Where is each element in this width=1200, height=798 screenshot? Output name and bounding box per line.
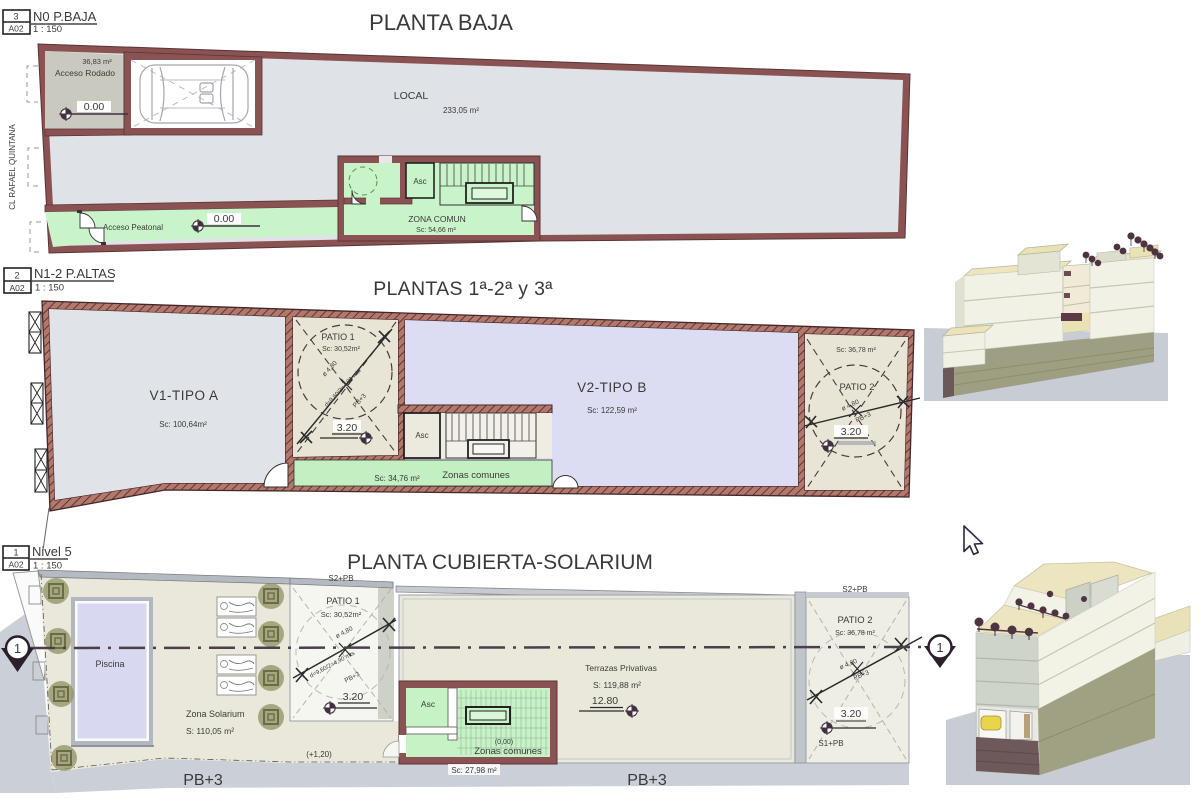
svg-text:Piscina: Piscina bbox=[95, 659, 124, 669]
svg-text:1: 1 bbox=[13, 548, 18, 558]
svg-text:1 : 150: 1 : 150 bbox=[33, 561, 62, 572]
svg-text:N1-2 P.ALTAS: N1-2 P.ALTAS bbox=[34, 266, 116, 281]
svg-text:Sc: 36,78 m²: Sc: 36,78 m² bbox=[836, 347, 876, 354]
svg-text:Sc: 54,66 m²: Sc: 54,66 m² bbox=[416, 227, 456, 234]
svg-text:3.20: 3.20 bbox=[343, 691, 364, 703]
svg-text:12.80: 12.80 bbox=[592, 695, 618, 707]
svg-text:3.20: 3.20 bbox=[841, 426, 862, 438]
svg-text:0.00: 0.00 bbox=[214, 213, 235, 225]
svg-text:PLANTAS 1ª-2ª y 3ª: PLANTAS 1ª-2ª y 3ª bbox=[373, 278, 553, 300]
svg-text:(0,00): (0,00) bbox=[495, 739, 513, 746]
svg-text:1 : 150: 1 : 150 bbox=[33, 24, 62, 35]
svg-text:S2+PB: S2+PB bbox=[328, 574, 353, 583]
svg-text:V1-TIPO A: V1-TIPO A bbox=[149, 388, 218, 403]
svg-text:Sc: 36,78 m²: Sc: 36,78 m² bbox=[835, 630, 875, 637]
svg-text:PATIO 1: PATIO 1 bbox=[326, 596, 359, 606]
svg-text:1: 1 bbox=[14, 641, 21, 656]
svg-text:PATIO 2: PATIO 2 bbox=[839, 382, 874, 393]
svg-text:ZONA COMUN: ZONA COMUN bbox=[408, 214, 466, 224]
svg-text:V2-TIPO B: V2-TIPO B bbox=[577, 380, 647, 395]
svg-text:CL RAFAEL QUINTANA: CL RAFAEL QUINTANA bbox=[8, 124, 17, 210]
svg-text:PLANTA BAJA: PLANTA BAJA bbox=[369, 10, 513, 35]
svg-text:Sc: 122,59 m²: Sc: 122,59 m² bbox=[587, 406, 637, 415]
svg-text:233,05 m²: 233,05 m² bbox=[443, 106, 479, 115]
svg-text:1 : 150: 1 : 150 bbox=[35, 283, 64, 294]
svg-text:PB+3: PB+3 bbox=[627, 772, 667, 789]
svg-text:PATIO 1: PATIO 1 bbox=[321, 332, 354, 342]
svg-text:3: 3 bbox=[13, 12, 18, 22]
svg-text:PB+3: PB+3 bbox=[183, 772, 223, 789]
svg-text:Acceso Peatonal: Acceso Peatonal bbox=[103, 223, 163, 232]
svg-text:Sc: 27,98 m²: Sc: 27,98 m² bbox=[451, 766, 497, 775]
svg-text:0.00: 0.00 bbox=[84, 101, 105, 113]
svg-text:Sc: 34,76 m²: Sc: 34,76 m² bbox=[374, 474, 420, 483]
svg-text:Asc: Asc bbox=[415, 431, 428, 440]
svg-text:Zonas comunes: Zonas comunes bbox=[474, 746, 542, 757]
svg-text:(+1,20): (+1,20) bbox=[306, 750, 332, 759]
svg-text:S2+PB: S2+PB bbox=[842, 585, 867, 594]
svg-text:LOCAL: LOCAL bbox=[394, 90, 429, 102]
svg-text:3.20: 3.20 bbox=[841, 708, 862, 720]
svg-text:A02: A02 bbox=[8, 24, 23, 34]
svg-text:S: 119,88 m²: S: 119,88 m² bbox=[593, 680, 641, 690]
svg-text:A02: A02 bbox=[9, 283, 24, 293]
svg-text:Asc: Asc bbox=[421, 699, 436, 709]
svg-text:N0 P.BAJA: N0 P.BAJA bbox=[33, 9, 97, 24]
svg-text:PLANTA CUBIERTA-SOLARIUM: PLANTA CUBIERTA-SOLARIUM bbox=[347, 551, 653, 574]
svg-text:S: 110,05 m²: S: 110,05 m² bbox=[186, 726, 234, 736]
svg-text:Nivel 5: Nivel 5 bbox=[32, 544, 72, 559]
svg-text:3.20: 3.20 bbox=[337, 422, 358, 434]
svg-text:PATIO 2: PATIO 2 bbox=[837, 615, 872, 626]
svg-text:Terrazas Privativas: Terrazas Privativas bbox=[585, 663, 657, 673]
svg-text:Zonas comunes: Zonas comunes bbox=[442, 470, 510, 481]
svg-text:Sc: 30,52m²: Sc: 30,52m² bbox=[321, 610, 362, 619]
svg-text:Sc: 100,64m²: Sc: 100,64m² bbox=[159, 420, 207, 429]
svg-text:A02: A02 bbox=[8, 560, 23, 570]
svg-text:2: 2 bbox=[14, 271, 19, 281]
svg-text:Acceso Rodado: Acceso Rodado bbox=[55, 68, 115, 78]
svg-text:36,83 m²: 36,83 m² bbox=[82, 57, 112, 66]
svg-text:Asc: Asc bbox=[413, 177, 426, 186]
svg-text:1: 1 bbox=[936, 640, 943, 655]
svg-text:Sc: 30,52m²: Sc: 30,52m² bbox=[322, 346, 360, 353]
svg-text:S1+PB: S1+PB bbox=[818, 739, 843, 748]
svg-text:Zona Solarium: Zona Solarium bbox=[186, 709, 245, 719]
